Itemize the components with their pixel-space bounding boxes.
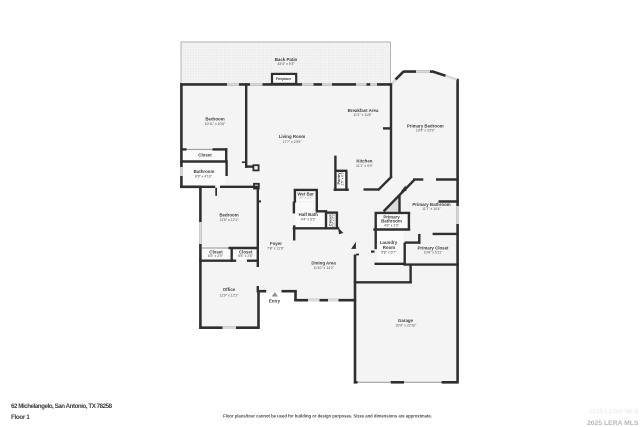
svg-text:10'8" x 5'11": 10'8" x 5'11" xyxy=(424,250,443,254)
svg-text:3'6" x 2'3": 3'6" x 2'3" xyxy=(299,196,313,200)
svg-text:Floor plans/tour cannot be use: Floor plans/tour cannot be used for buil… xyxy=(223,414,432,419)
svg-text:Entry: Entry xyxy=(269,298,281,303)
svg-text:7'8" x 11'9": 7'8" x 11'9" xyxy=(267,246,284,250)
svg-text:Garage: Garage xyxy=(398,318,414,323)
svg-text:2025 LERA MLS: 2025 LERA MLS xyxy=(589,409,640,416)
svg-text:Dining Area: Dining Area xyxy=(311,260,336,265)
svg-text:2'1" x 6'2": 2'1" x 6'2" xyxy=(331,213,335,227)
svg-text:Room: Room xyxy=(383,245,396,250)
svg-text:Living Room: Living Room xyxy=(279,134,306,139)
svg-text:11'1" x 11'8": 11'1" x 11'8" xyxy=(353,113,372,117)
svg-text:20'9" x 22'10": 20'9" x 22'10" xyxy=(396,323,418,327)
svg-text:2025 LERA MLS: 2025 LERA MLS xyxy=(587,420,639,427)
svg-text:Primary Bedroom: Primary Bedroom xyxy=(407,123,444,128)
svg-text:11'9" x 12'1": 11'9" x 12'1" xyxy=(220,294,239,298)
svg-text:4'4" x 5'3": 4'4" x 5'3" xyxy=(301,217,317,221)
svg-text:Closet: Closet xyxy=(198,152,212,157)
svg-text:Bedroom: Bedroom xyxy=(205,117,224,122)
svg-text:11'5" x 12'1": 11'5" x 12'1" xyxy=(220,218,239,222)
svg-text:62 Michelangelo, San Antonio,: 62 Michelangelo, San Antonio, TX 78258 xyxy=(11,403,113,410)
svg-text:Bedroom: Bedroom xyxy=(219,212,238,217)
svg-text:Half Bath: Half Bath xyxy=(299,212,319,217)
svg-text:11'1" x 9'9": 11'1" x 9'9" xyxy=(356,164,373,168)
svg-text:4'8" x 2'9": 4'8" x 2'9" xyxy=(384,223,400,227)
svg-text:Kitchen: Kitchen xyxy=(356,158,372,163)
svg-text:10'11" x 10'6": 10'11" x 10'6" xyxy=(205,122,226,126)
svg-text:17'7" x 23'9": 17'7" x 23'9" xyxy=(283,140,303,144)
svg-text:Office: Office xyxy=(223,287,236,292)
svg-text:Fireplace: Fireplace xyxy=(276,77,291,81)
svg-text:11'10" x 14'2": 11'10" x 14'2" xyxy=(313,266,334,270)
svg-text:13'4" x 23'9": 13'4" x 23'9" xyxy=(416,129,436,133)
svg-text:43'4" x 9'3": 43'4" x 9'3" xyxy=(278,62,296,66)
svg-text:Floor 1: Floor 1 xyxy=(11,414,30,421)
svg-text:5'5" x 2'6": 5'5" x 2'6" xyxy=(238,254,254,258)
svg-text:5'8" x 6'7": 5'8" x 6'7" xyxy=(381,250,397,254)
svg-text:2'5" x 6'3": 2'5" x 6'3" xyxy=(341,172,345,186)
svg-text:8'9" x 4'10": 8'9" x 4'10" xyxy=(195,175,213,179)
svg-text:Bathroom: Bathroom xyxy=(194,169,215,174)
svg-text:Foyer: Foyer xyxy=(270,241,282,246)
svg-text:6'5" x 2'9": 6'5" x 2'9" xyxy=(208,254,224,258)
svg-text:11'7" x 10'4": 11'7" x 10'4" xyxy=(422,207,441,211)
